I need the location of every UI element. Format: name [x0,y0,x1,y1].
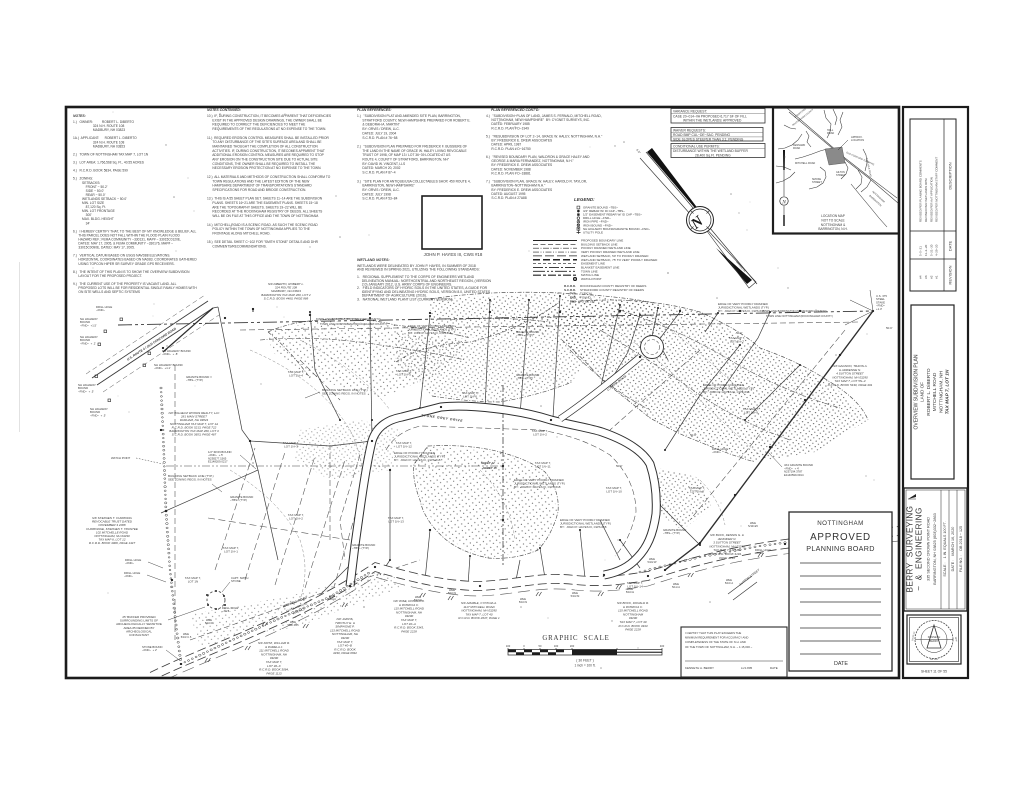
svg-text:R.C.R.D. BOOK 4906, PAGE 1447: R.C.R.D. BOOK 4906, PAGE 1447 [89,541,136,545]
svg-text:5/10/.C: 5/10/.C [328,597,336,601]
svg-text:DATE : MARCH 16, 2020: DATE : MARCH 16, 2020 [951,527,955,572]
svg-text:CONSULTANT: CONSULTANT [129,633,149,637]
svg-text:~FND~ + .5': ~FND~ + .5' [90,413,106,417]
svg-text:PAGE 2228: PAGE 2228 [401,629,417,633]
svg-text:LAND OF: LAND OF [920,382,925,402]
svg-text:BY: JOHN P. HAYES III, CWS #1: BY: JOHN P. HAYES III, CWS #18 [394,458,441,462]
svg-text:5~5~21: 5~5~21 [919,246,923,256]
svg-text:TAX MAP 7, LOT 1N: TAX MAP 7, LOT 1N [945,369,951,414]
svg-text:N: N [781,199,786,205]
svg-text:REVISED PER PLANING BOARD COMM: REVISED PER PLANING BOARD COMMENTS [919,160,923,222]
svg-text:ROBERT L. DiBERTO: ROBERT L. DiBERTO [926,368,932,416]
svg-text:SPECIFICATIONS FOR ROAD AND BR: SPECIFICATIONS FOR ROAD AND BRIDGE CONST… [207,188,306,192]
svg-text:SEE ZONING REGS. IN NOTES: SEE ZONING REGS. IN NOTES [322,392,366,396]
svg-text:NOTTINGHAM: NOTTINGHAM [817,520,864,527]
svg-text:LOT 1N~5: LOT 1N~5 [397,373,411,377]
svg-text:LOT 1N~4: LOT 1N~4 [289,374,303,378]
svg-text:LOT 1N~2: LOT 1N~2 [289,517,303,521]
svg-text:BERRY SURVEYING: BERRY SURVEYING [906,506,915,593]
svg-text:200: 200 [570,644,575,648]
svg-text:50.0': 50.0' [886,326,893,330]
svg-text:WETLAND NOTES:: WETLAND NOTES: [357,258,390,262]
svg-text:LOT 1N~13: LOT 1N~13 [388,520,404,524]
svg-text:LOT 1N: LOT 1N [188,580,198,584]
svg-text:5/10/.D: 5/10/.D [205,621,213,625]
svg-text:#2: #2 [929,275,933,279]
svg-text:R.C.R.D. PLAN # D~1949: R.C.R.D. PLAN # D~1949 [486,126,529,130]
svg-text:5/10/.N: 5/10/.N [448,591,456,595]
svg-text:E1140599.0914: E1140599.0914 [784,473,804,477]
svg-text:TO BE SET: TO BE SET [580,299,596,303]
svg-text:~FND~ +1.1': ~FND~ +1.1' [154,366,171,370]
svg-text:MADBURY, NH 03823: MADBURY, NH 03823 [73,144,125,148]
svg-text:FILE NO. : DB 2018 ~ 125: FILE NO. : DB 2018 ~ 125 [959,526,963,572]
svg-text:PAGE 1113: PAGE 1113 [266,671,282,675]
svg-text:LOT 1N~12: LOT 1N~12 [396,445,412,449]
svg-text:R.C.R.D. PLAN # D~18881: R.C.R.D. PLAN # D~18881 [486,171,531,175]
svg-text:UTILITY POLE: UTILITY POLE [583,230,603,234]
svg-text:TOWN LINE NOTTINGHAM (ROCKINGH: TOWN LINE NOTTINGHAM (ROCKINGHAM COUNTY) [766,314,833,318]
svg-text:5/10/.N: 5/10/.N [519,600,527,604]
svg-text:ROAD: ROAD [827,132,834,135]
svg-text:SEE ZONING REGS. IN NOTES: SEE ZONING REGS. IN NOTES [168,478,212,482]
svg-text:SCALE : 1 IN. EQUALS 100 FT: SCALE : 1 IN. EQUALS 100 FT. [943,521,947,576]
svg-text:LOT 1N~1: LOT 1N~1 [224,550,238,554]
svg-text:No. 805: No. 805 [930,659,938,661]
svg-text:BERRY: BERRY [930,639,939,643]
svg-text:E1148209.0217: E1148209.0217 [208,460,228,464]
svg-text:SHEET 12: SHEET 12 [481,461,495,465]
svg-text:28,400 Sq.Ft. PENDING: 28,400 Sq.Ft. PENDING [695,153,731,157]
svg-text:5/10/.C.5: 5/10/.C.5 [181,635,192,639]
svg-text:BY: JOHN P. HAYES III, CWS #1: BY: JOHN P. HAYES III, CWS #18 [408,331,452,335]
svg-text:5/11/.D55: 5/11/.D55 [287,623,299,627]
svg-text:SIDE SLOPES STEEPER THAN 3:1:: SIDE SLOPES STEEPER THAN 3:1: PENDING [673,137,744,141]
svg-text:R.C.R.D. BOOK 2647, PAGE 1: R.C.R.D. BOOK 2647, PAGE 1 [458,616,500,620]
svg-text:PLANNING BOARD: PLANNING BOARD [806,544,875,553]
svg-text:LOCATION: LOCATION [851,138,864,142]
svg-text:50.0': 50.0' [736,331,743,335]
svg-text:SHEET 13: SHEET 13 [483,466,497,470]
svg-text:I CERTIFY THAT THIS PLAT EXCEE: I CERTIFY THAT THIS PLAT EXCEEDS THE [685,631,741,635]
svg-text:( 30 FEET ): ( 30 FEET ) [576,659,593,663]
svg-text:STONE: STONE [231,579,241,583]
svg-text:BARRINGTON, NH 03825 (603)332~: BARRINGTON, NH 03825 (603)332~2863 [933,513,937,584]
svg-text:50.0': 50.0' [616,464,623,468]
svg-text:50.0': 50.0' [690,433,697,437]
svg-text:4~29~20: 4~29~20 [935,244,939,256]
svg-text:3. NATIONAL WETLAND PLANT LI: 3. NATIONAL WETLAND PLANT LIST (CURRENT … [357,297,454,301]
svg-text:WATCH POINT: WATCH POINT [111,456,131,460]
svg-text:LOT 1N~8: LOT 1N~8 [690,490,704,494]
svg-text:S.C.R.D. PLAN # 87~4: S.C.R.D. PLAN # 87~4 [357,171,396,175]
svg-text:335 SECOND CROWN POINT ROAD: 335 SECOND CROWN POINT ROAD [927,517,931,581]
svg-text:VARIANCE REQUEST:: VARIANCE REQUEST: [673,110,707,114]
svg-text:NOTTINGHAM, NH: NOTTINGHAM, NH [938,371,944,413]
svg-text:LOT 1N~3: LOT 1N~3 [284,445,298,449]
svg-text:~TBS~ (TYP.): ~TBS~ (TYP.) [352,546,369,550]
svg-text:S.C.R.D. BOOK 4460, PAGE 869: S.C.R.D. BOOK 4460, PAGE 869 [264,296,309,300]
svg-text:4.) R.C.R.D. BOOK 5834, PAGE: 4.) R.C.R.D. BOOK 5834, PAGE 599 [73,169,128,173]
svg-text:+1.3': +1.3' [876,307,883,311]
svg-text:KENNETH: KENNETH [928,635,941,639]
svg-text:ROAD: ROAD [793,147,800,150]
svg-text:STREET: STREET [836,174,846,177]
svg-text:~FND~: ~FND~ [124,574,133,578]
svg-text:DATE: DATE [770,666,778,670]
svg-text:R.C.R.D. PLAN # D~16750: R.C.R.D. PLAN # D~16750 [486,147,531,151]
svg-text:TOWN LINE NOTTINGHAM (ROCKINGH: TOWN LINE NOTTINGHAM (ROCKINGHAM COUNTY) [320,322,387,326]
svg-text:#4: #4 [919,275,923,279]
svg-text:WITHIN THE WETLANDS: APPROVED: WITHIN THE WETLANDS: APPROVED [683,119,742,123]
svg-text:GRAPHIC SCALE: GRAPHIC SCALE [542,635,609,642]
svg-text:1 inch = 100 ft.: 1 inch = 100 ft. [575,664,596,668]
svg-text:BARRINGTON, N.H.: BARRINGTON, N.H. [818,227,847,231]
svg-text:~FND~ + .8': ~FND~ + .8' [162,352,178,356]
svg-text:~TBS~ (TYP.): ~TBS~ (TYP.) [516,333,533,337]
svg-text:~FND~ +1.5': ~FND~ +1.5' [80,323,97,327]
svg-text:5/10/.H: 5/10/.H [626,590,634,594]
svg-text:DATE: DATE [948,240,953,251]
svg-text:MINIMUM REQUIREMENT FOR ACCURA: MINIMUM REQUIREMENT FOR ACCURACY AND [685,636,748,640]
svg-text:LLS 805: LLS 805 [741,666,753,670]
svg-text:LOT 1N~10: LOT 1N~10 [606,490,622,494]
svg-text:PLAN REFERENCES:: PLAN REFERENCES: [357,108,391,112]
svg-text:MITCHELL ROAD: MITCHELL ROAD [932,372,938,411]
svg-text:NOT TO SCALE: NOT TO SCALE [821,218,844,222]
svg-text:34': 34' [73,221,90,225]
svg-text:S.C.R.D. PLAN # 53~84: S.C.R.D. PLAN # 53~84 [357,197,398,201]
svg-text:~FND~: ~FND~ [712,450,721,454]
svg-text:LOT 1N~6: LOT 1N~6 [463,395,477,399]
svg-text:TBS: TBS [570,299,576,303]
svg-text:MITCHELL ROAD: MITCHELL ROAD [795,162,815,165]
svg-text:5/10/.A: 5/10/.A [725,581,733,585]
svg-text:BY: JOHN P. HAYES III, CWS #1: BY: JOHN P. HAYES III, CWS #18 [718,309,765,313]
svg-text:~ & ENGINEERING: ~ & ENGINEERING [915,507,924,590]
svg-text:WILL BE ON FILE AT THIS OFFICE: WILL BE ON FILE AT THIS OFFICE AND THE T… [207,214,319,218]
svg-text:LOCATION MAP: LOCATION MAP [821,214,845,218]
svg-text:STREET: STREET [812,181,822,184]
svg-text:TOWN LINE BARRINGTON (STRAFFOR: TOWN LINE BARRINGTON (STRAFFORD COUNTY) [316,317,381,321]
svg-text:COMMENTS/RECOMMENDATIONS.: COMMENTS/RECOMMENDATIONS. [207,245,267,249]
svg-text:3.) LOT AREA: 1,766,568 Sq.: 3.) LOT AREA: 1,766,568 Sq. Ft., 40.55 A… [73,161,145,165]
svg-text:2.) TOWN OF NOTTINGHAM TAX M: 2.) TOWN OF NOTTINGHAM TAX MAP 7, LOT 1N [73,152,149,156]
svg-text:100: 100 [554,644,559,648]
svg-text:~FND~: ~FND~ [125,561,134,565]
svg-text:~FND~: ~FND~ [96,308,105,312]
svg-text:~FND~ + 2': ~FND~ + 2' [142,648,158,652]
svg-text:~SET~: ~SET~ [222,609,231,613]
svg-text:5/10/.E5: 5/10/.E5 [748,524,758,528]
svg-text:PAGE 1743: PAGE 1743 [719,556,735,560]
svg-text:NOTES:: NOTES: [73,114,86,118]
svg-text:4330, PAGE 0842: 4330, PAGE 0842 [333,651,357,655]
svg-text:COMPLETENESS OF THE STATE OF N: COMPLETENESS OF THE STATE OF N.H. AND [685,640,746,644]
svg-text:LOT 1N~9: LOT 1N~9 [744,411,758,415]
svg-text:REVISED PER WETLANDS RPM: REVISED PER WETLANDS RPM [924,178,928,222]
svg-text:SHEET 11 OF 55: SHEET 11 OF 55 [921,670,947,674]
svg-text:R.C.R.D. BOOK 5430, PAGE 491: R.C.R.D. BOOK 5430, PAGE 491 [828,383,873,387]
svg-text:LAYOUT FOR THE PROPOSED PROJEC: LAYOUT FOR THE PROPOSED PROJECT. [73,274,142,278]
svg-text:~TBS~ (TYP.): ~TBS~ (TYP.) [230,498,247,502]
svg-text:USING TOPCON HIPER SR SURVEY G: USING TOPCON HIPER SR SURVEY GRADE GPS R… [73,262,175,266]
svg-text:PLAN REFERENCED CONT'D:: PLAN REFERENCED CONT'D: [491,108,539,112]
svg-text:~FND~ + .5': ~FND~ + .5' [78,389,94,393]
svg-text:REVISED PER AoT APPLICATION: REVISED PER AoT APPLICATION [929,177,933,222]
svg-text:LOT 1N~11: LOT 1N~11 [535,465,551,469]
svg-text:APPROVED: APPROVED [810,532,871,543]
svg-text:S.C.R.D. PLAN # 27A88: S.C.R.D. PLAN # 27A88 [486,196,527,200]
svg-text:KENNETH A. BERRY: KENNETH A. BERRY [685,666,714,670]
svg-text:DESCRIPTION: DESCRIPTION [948,162,953,189]
svg-text:REVISED PER NOTTINGHAM STAFF C: REVISED PER NOTTINGHAM STAFF COMMENT [935,157,939,222]
svg-text:BY: JOHN P. HAYES III, CWS #1: BY: JOHN P. HAYES III, CWS #18 [514,485,561,489]
svg-text:5/10/.E: 5/10/.E [414,598,422,602]
svg-text:~TBS~ (TYP.): ~TBS~ (TYP.) [516,376,533,380]
svg-text:5/10/.W: 5/10/.W [648,560,657,564]
svg-text:LEGEND:: LEGEND: [574,197,595,202]
svg-text:5/10/.M: 5/10/.M [571,594,580,598]
svg-text:33015C0090E, DATED: MAY 17, 20: 33015C0090E, DATED: MAY 17, 2005. [73,246,135,250]
svg-text:LOT 1N~7: LOT 1N~7 [730,340,744,344]
svg-text:WATCH POINT: WATCH POINT [581,277,602,281]
svg-text:S.C.R.D. PLAN # 76~58: S.C.R.D. PLAN # 76~58 [357,136,398,140]
svg-text:LOT 1N~2: LOT 1N~2 [533,433,547,437]
svg-text:11~2~20: 11~2~20 [924,244,928,256]
svg-text:OVERVIEW SUBDIVISION PLAN: OVERVIEW SUBDIVISION PLAN [914,354,920,429]
svg-text:OF THE TOWN OF NOTTINGHAM, N.H: OF THE TOWN OF NOTTINGHAM, N.H. ~ 1:15,0… [685,645,753,649]
svg-text:DATE: DATE [834,661,848,667]
svg-text:TOWN LINE BARRINGTON (STRAFFOR: TOWN LINE BARRINGTON (STRAFFORD COUNTY) [762,309,827,313]
svg-text:#3: #3 [924,275,928,279]
svg-text:REQUIREMENTS OF THE REGULATION: REQUIREMENTS OF THE REGULATIONS AT NO EX… [207,127,326,131]
svg-text:~FND~: ~FND~ [755,551,764,555]
svg-text:#1: #1 [935,275,939,279]
svg-text:~TBS~ (TYP.): ~TBS~ (TYP.) [663,531,680,535]
svg-text:NECESSARY EROSION PROTECTION A: NECESSARY EROSION PROTECTION AT NO EXPEN… [207,166,321,170]
svg-text:JOHN P. HAYES III, CWS #18: JOHN P. HAYES III, CWS #18 [424,252,483,257]
svg-text:REVISION: REVISION [948,265,953,284]
svg-text:~FND~ + .2': ~FND~ + .2' [80,341,96,345]
svg-text:NOTES CONTINUED:: NOTES CONTINUED: [207,108,241,112]
svg-text:100: 100 [506,644,511,648]
svg-text:PAGE 2228: PAGE 2228 [625,628,641,632]
svg-text:NOTTINGHAM &: NOTTINGHAM & [821,223,846,227]
svg-text:ON SITE WELLS AND SEPTIC SYSTE: ON SITE WELLS AND SEPTIC SYSTEMS [73,290,141,294]
svg-text:S.C.R.D. BOOK 3653, PAGE 467: S.C.R.D. BOOK 3653, PAGE 467 [172,433,217,437]
svg-text:5~21~20: 5~21~20 [929,244,933,256]
svg-text:MADBURY, NH 03823: MADBURY, NH 03823 [73,128,125,132]
svg-text:5/11/.A: 5/11/.A [672,585,680,589]
svg-text:BY: JOHN P. HAYES III, CWS #1: BY: JOHN P. HAYES III, CWS #18 [560,525,607,529]
svg-text:AND REVIEWED IN SPRING 2021, U: AND REVIEWED IN SPRING 2021, UTILIZING T… [357,268,480,272]
svg-text:~TBS~ (TYP.): ~TBS~ (TYP.) [186,378,203,382]
svg-text:FRONTAGE ALONG MITCHELL ROAD.: FRONTAGE ALONG MITCHELL ROAD. [207,231,270,235]
svg-text:400: 400 [660,644,665,648]
svg-text:BY: JOHN P. HAYES III, CWS #1: BY: JOHN P. HAYES III, CWS #18 [703,390,750,394]
